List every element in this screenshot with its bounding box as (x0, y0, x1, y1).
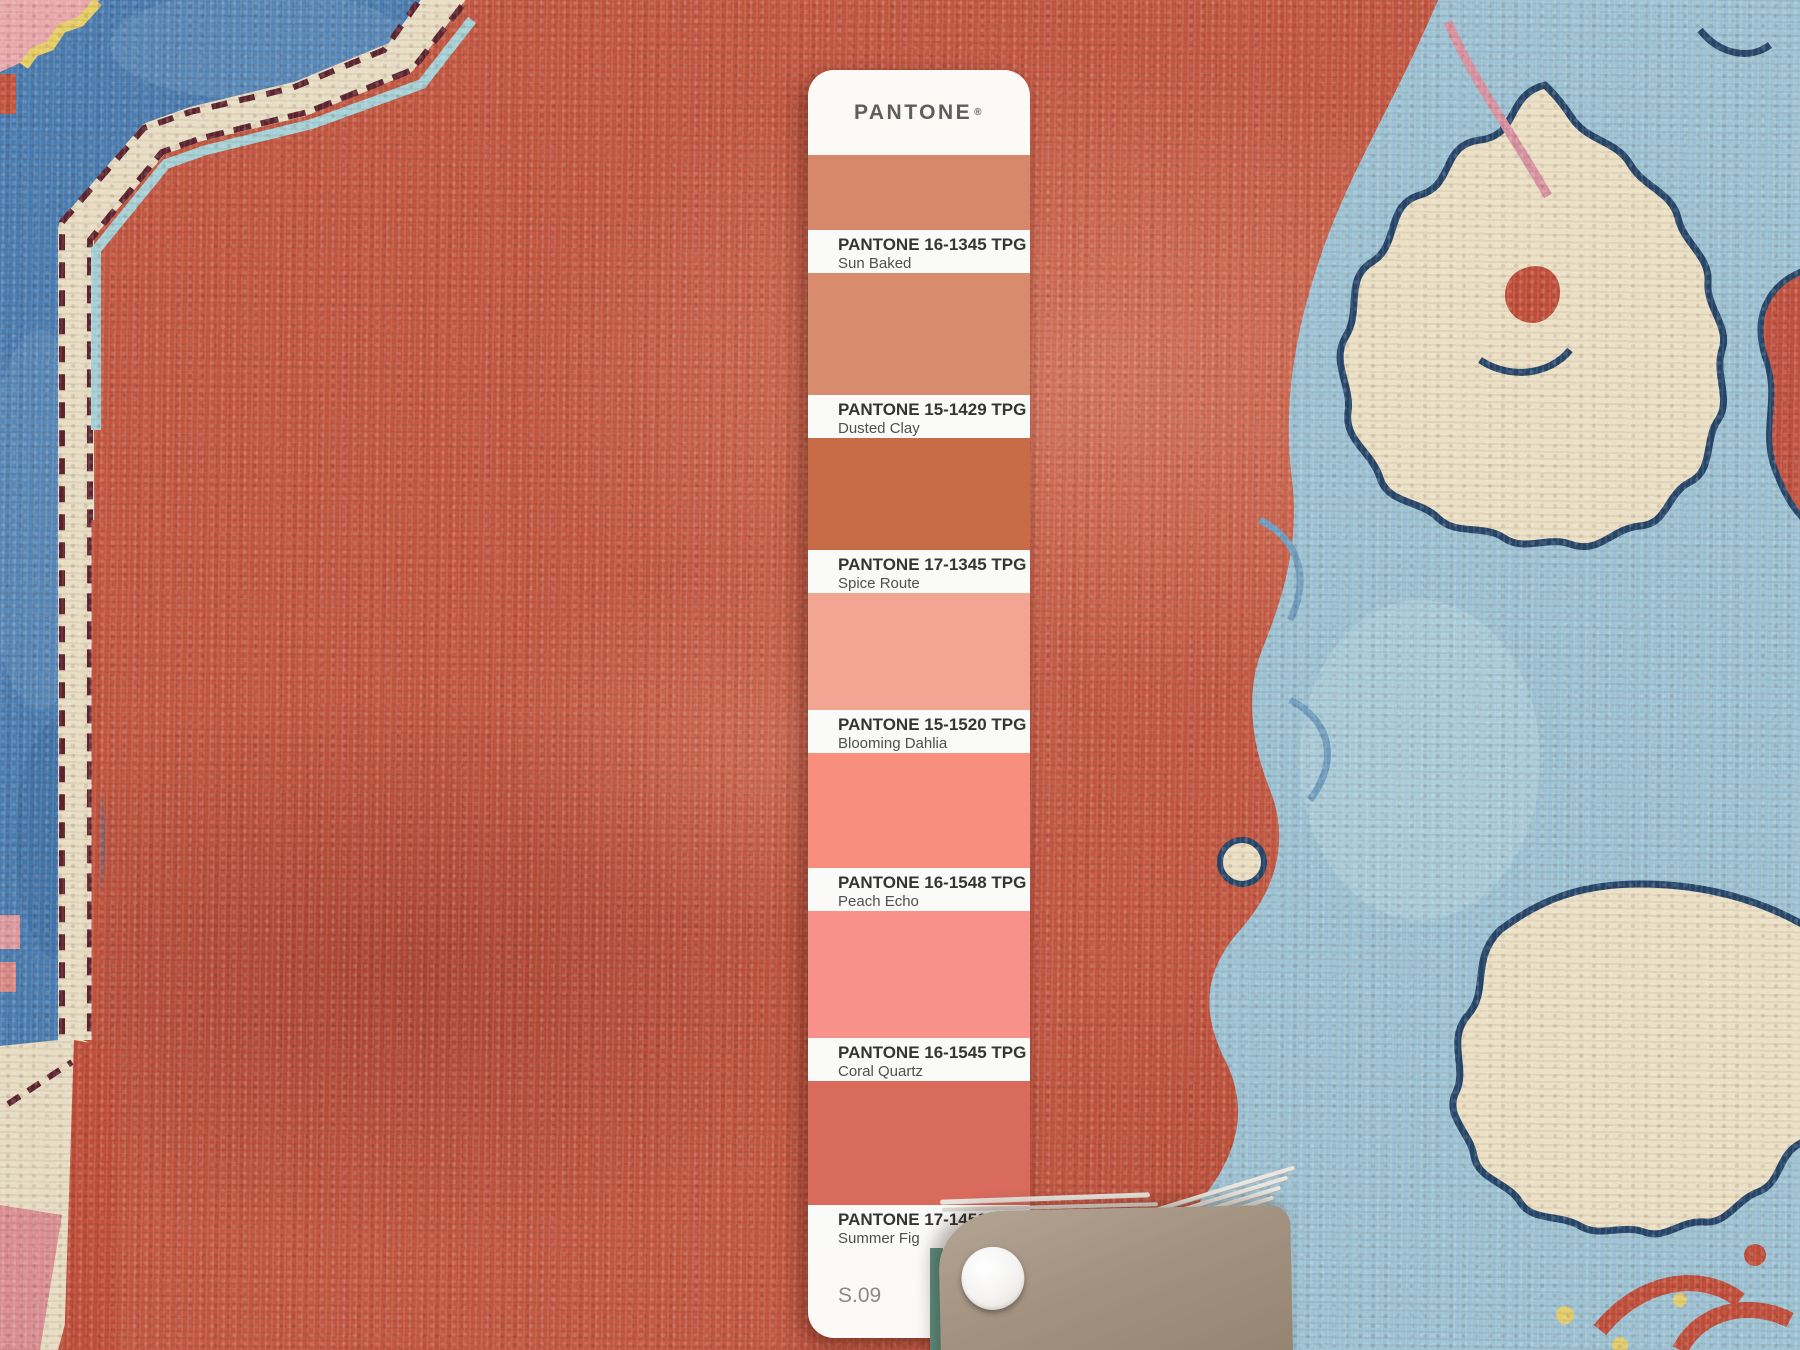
swatch-name: Peach Echo (838, 893, 1020, 911)
swatch-name: Coral Quartz (838, 1063, 1020, 1081)
swatch-row: PANTONE 16-1545 TPG Coral Quartz (808, 911, 1030, 1081)
yellow-dot-1 (1556, 1306, 1574, 1324)
swatch-color (808, 438, 1030, 550)
swatch-color (808, 911, 1030, 1038)
pantone-wordmark: PANTONE (854, 101, 972, 125)
swatch-color (808, 273, 1030, 395)
swatch-name: Spice Route (838, 575, 1020, 593)
swatch-label: PANTONE 15-1429 TPG Dusted Clay (808, 395, 1030, 438)
pink-edge-patch-1 (0, 915, 20, 949)
swatch-color (808, 155, 1030, 230)
swatch-name: Dusted Clay (838, 420, 1020, 438)
ivory-bottom-blob (1453, 884, 1800, 1234)
swatch-row: PANTONE 15-1520 TPG Blooming Dahlia (808, 593, 1030, 753)
swatch-row: PANTONE 17-1450 TPG Summer Fig (808, 1081, 1030, 1248)
swatch-row: PANTONE 16-1548 TPG Peach Echo (808, 753, 1030, 911)
swatch-code: PANTONE 15-1520 TPG (838, 715, 1020, 735)
pantone-strip: PANTONE® PANTONE 16-1345 TPG Sun Baked P… (808, 70, 1030, 1338)
swatch-list: PANTONE 16-1345 TPG Sun Baked PANTONE 15… (808, 155, 1030, 1248)
swatch-row: PANTONE 17-1345 TPG Spice Route (808, 438, 1030, 593)
swatch-name: Summer Fig (838, 1230, 1020, 1248)
swatch-row: PANTONE 15-1429 TPG Dusted Clay (808, 273, 1030, 438)
swatch-row: PANTONE 16-1345 TPG Sun Baked (808, 155, 1030, 273)
swatch-name: Sun Baked (838, 255, 1020, 273)
maroon-outer-guard (62, 0, 434, 1040)
ivory-border-band (76, 0, 452, 1040)
swatch-code: PANTONE 15-1429 TPG (838, 400, 1020, 420)
swatch-code: PANTONE 17-1450 TPG (838, 1210, 1020, 1230)
swatch-label: PANTONE 16-1345 TPG Sun Baked (808, 230, 1030, 273)
red-dot (1744, 1244, 1766, 1266)
swatch-color (808, 753, 1030, 868)
pink-edge-patch-2 (0, 962, 16, 992)
rug-top-left-corner (0, 0, 472, 1350)
yellow-dot-3 (1673, 1293, 1687, 1307)
photo-canvas: PANTONE® PANTONE 16-1345 TPG Sun Baked P… (0, 0, 1800, 1350)
registered-trademark-symbol: ® (974, 107, 984, 118)
swatch-label: PANTONE 16-1545 TPG Coral Quartz (808, 1038, 1030, 1081)
swatch-color (808, 1081, 1030, 1205)
rug-right-medallion (1150, 0, 1800, 1350)
strip-footer: S.09 (808, 1248, 1030, 1338)
swatch-name: Blooming Dahlia (838, 735, 1020, 753)
swatch-code: PANTONE 17-1345 TPG (838, 555, 1020, 575)
swatch-label: PANTONE 15-1520 TPG Blooming Dahlia (808, 710, 1030, 753)
swatch-code: PANTONE 16-1545 TPG (838, 1043, 1020, 1063)
pink-bit-bottom (1196, 1300, 1222, 1340)
swatch-code: PANTONE 16-1548 TPG (838, 873, 1020, 893)
swatch-label: PANTONE 17-1345 TPG Spice Route (808, 550, 1030, 593)
swatch-label: PANTONE 17-1450 TPG Summer Fig (808, 1205, 1030, 1248)
ivory-dot-detail (1220, 840, 1264, 884)
swatch-label: PANTONE 16-1548 TPG Peach Echo (808, 868, 1030, 911)
swatch-code: PANTONE 16-1345 TPG (838, 235, 1020, 255)
red-edge-patch (0, 74, 16, 114)
page-code: S.09 (838, 1284, 881, 1308)
swatch-color (808, 593, 1030, 710)
pantone-logo: PANTONE® (808, 70, 1030, 155)
